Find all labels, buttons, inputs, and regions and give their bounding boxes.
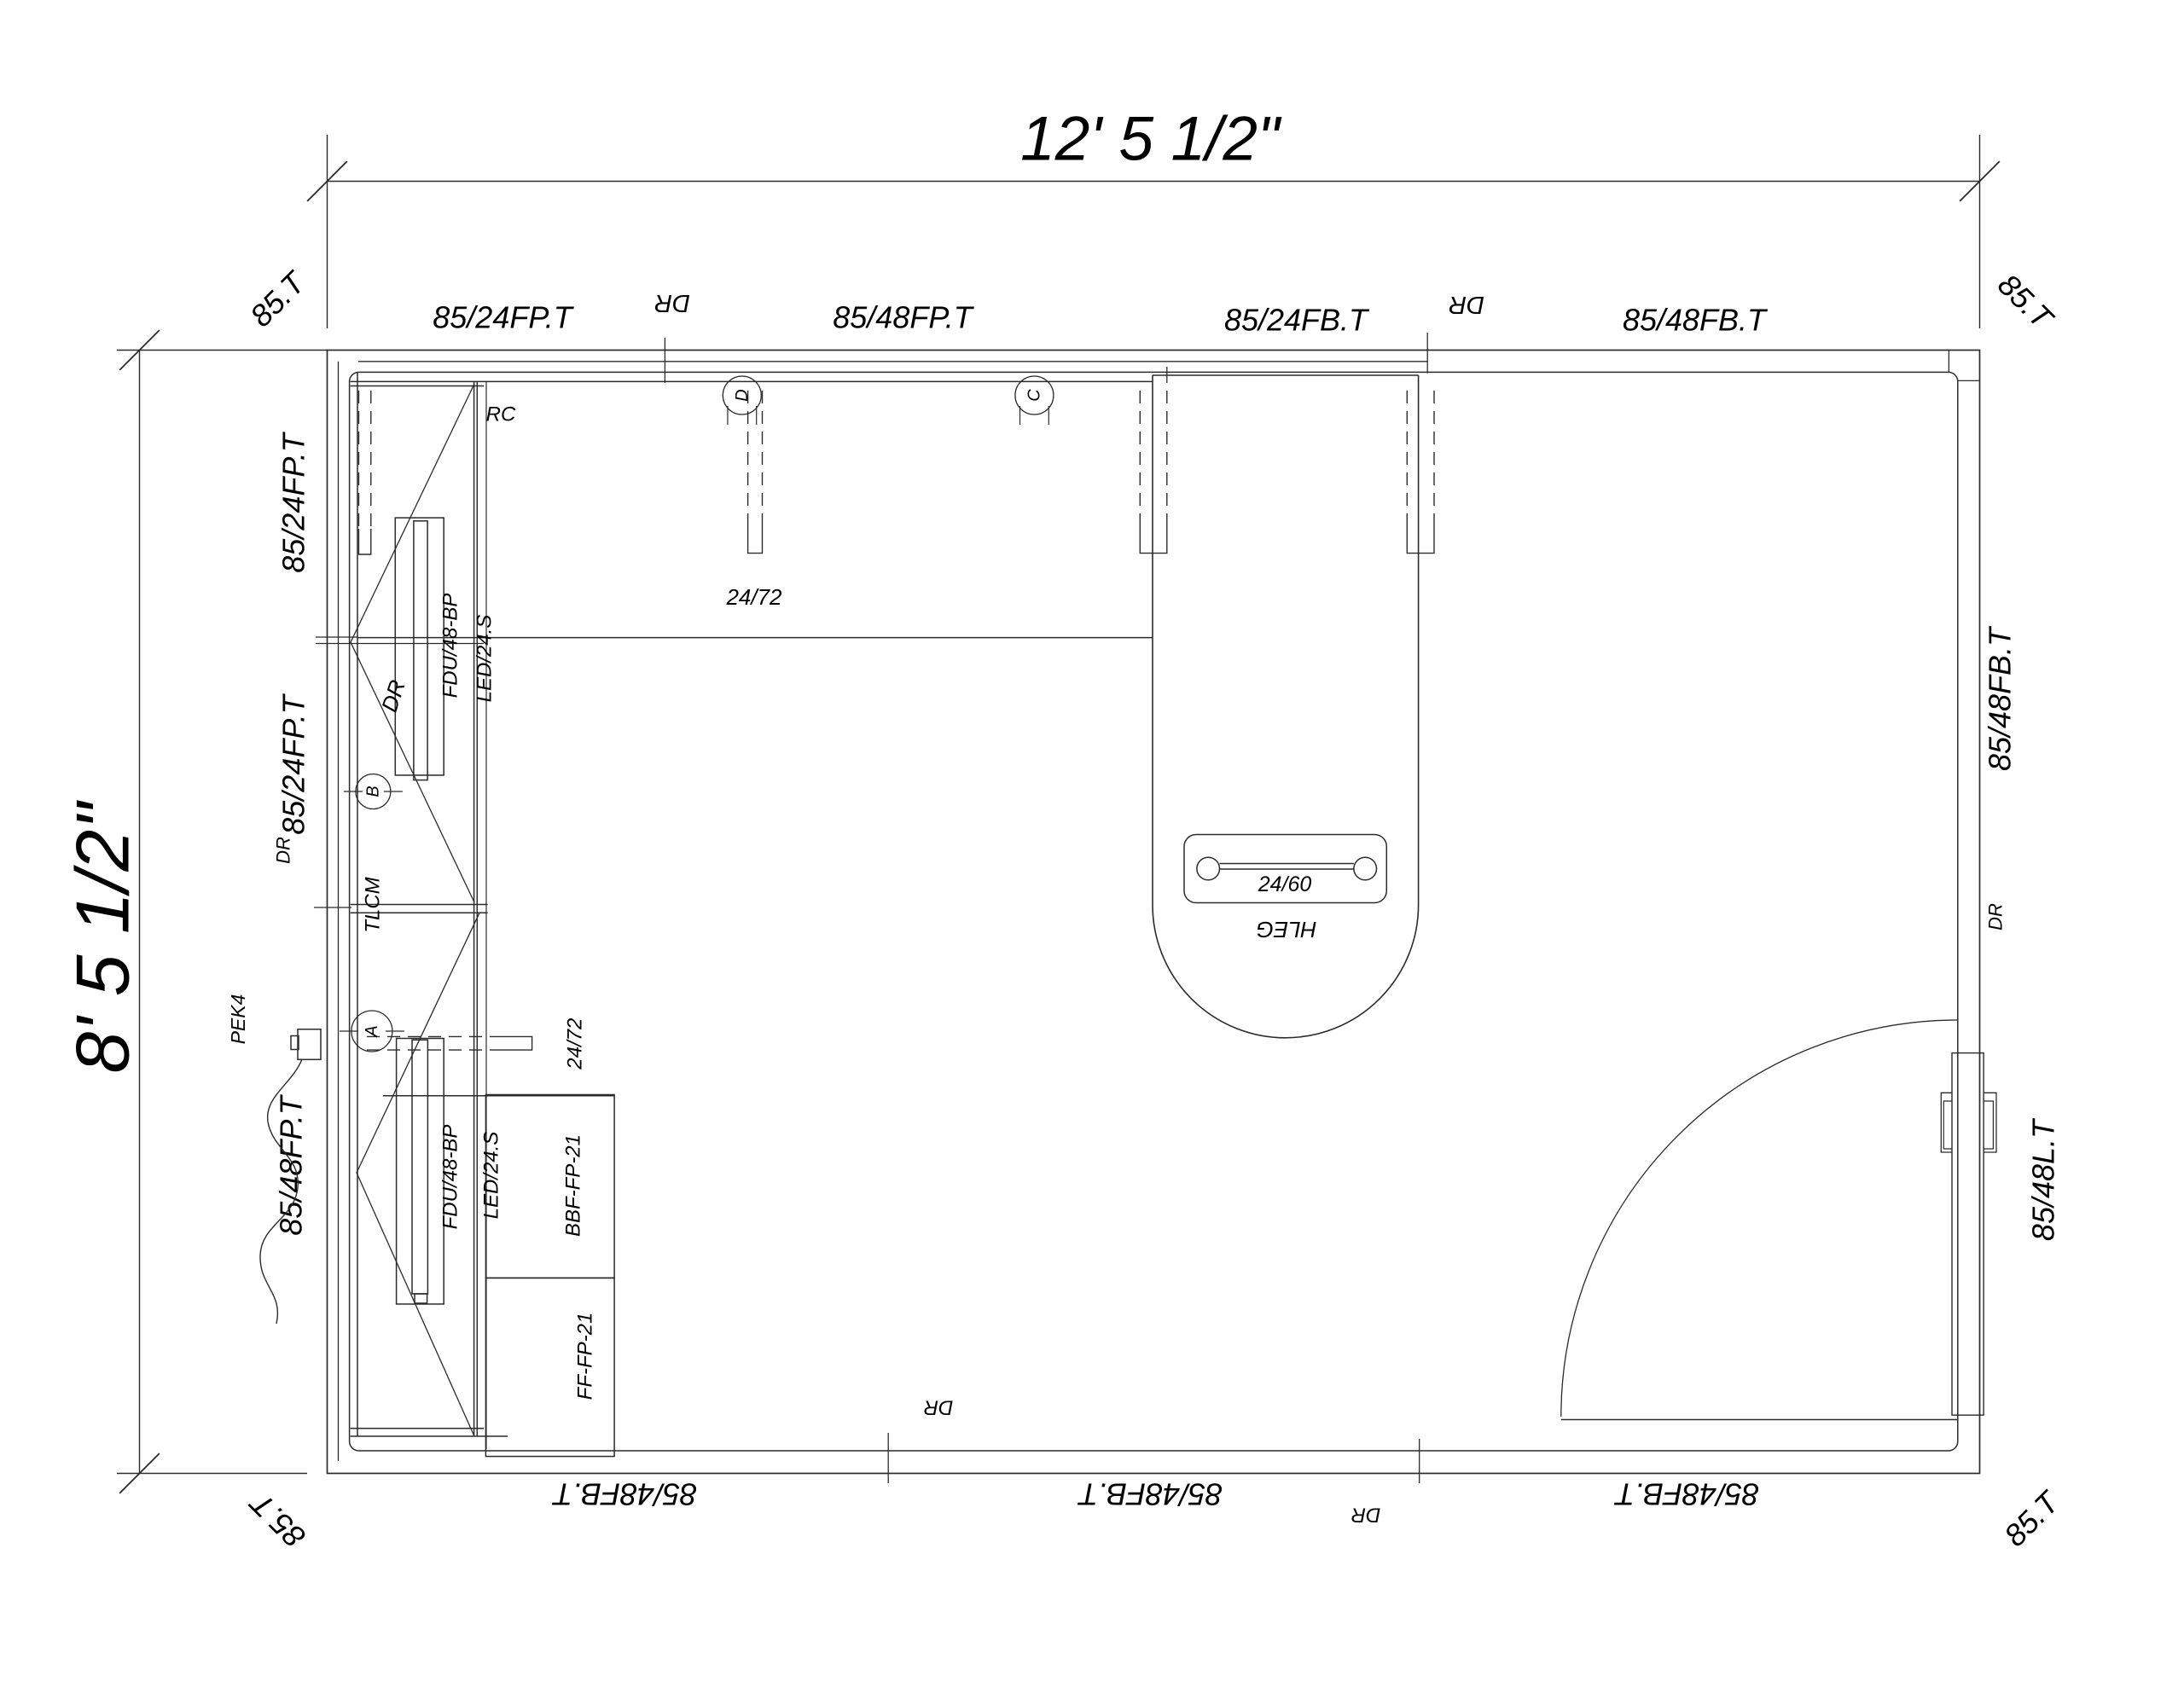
svg-text:24/60: 24/60 <box>1258 872 1312 896</box>
svg-text:DR: DR <box>924 1396 954 1419</box>
svg-text:85/48FB.T: 85/48FB.T <box>1613 1477 1759 1512</box>
svg-text:HLEG: HLEG <box>1257 917 1317 942</box>
svg-text:24/72: 24/72 <box>564 1018 587 1070</box>
svg-text:DR: DR <box>1985 903 2007 930</box>
svg-text:DR: DR <box>273 837 294 864</box>
svg-text:A: A <box>363 1025 381 1037</box>
svg-text:TLCM: TLCM <box>362 877 385 932</box>
svg-text:D: D <box>733 389 752 401</box>
svg-text:PEK4: PEK4 <box>227 994 249 1045</box>
svg-text:85/48FB.T: 85/48FB.T <box>551 1477 697 1512</box>
svg-text:RC: RC <box>486 403 516 426</box>
svg-text:FDU/48-BP: FDU/48-BP <box>439 1125 462 1230</box>
svg-text:24/72: 24/72 <box>725 584 782 610</box>
svg-text:85/48FB.T: 85/48FB.T <box>1623 303 1769 338</box>
svg-text:85/48FB.T: 85/48FB.T <box>1983 625 2018 771</box>
svg-text:8' 5 1/2": 8' 5 1/2" <box>61 800 145 1074</box>
svg-text:85/24FP.T: 85/24FP.T <box>276 431 311 572</box>
svg-text:LED/24.S: LED/24.S <box>480 1132 503 1220</box>
svg-text:LED/24.S: LED/24.S <box>473 615 497 703</box>
svg-text:DR: DR <box>1351 1504 1381 1527</box>
svg-text:85/24FB.T: 85/24FB.T <box>1224 303 1370 338</box>
svg-text:85/48FB.T: 85/48FB.T <box>1077 1477 1223 1512</box>
svg-text:85/48FP.T: 85/48FP.T <box>274 1093 309 1235</box>
svg-text:85/48FP.T: 85/48FP.T <box>833 300 974 335</box>
svg-text:DR: DR <box>1449 291 1484 318</box>
svg-text:BBF-FP-21: BBF-FP-21 <box>562 1134 585 1237</box>
svg-text:B: B <box>363 786 382 797</box>
svg-text:12' 5 1/2": 12' 5 1/2" <box>1020 105 1282 174</box>
svg-text:85/24FP.T: 85/24FP.T <box>276 693 311 834</box>
svg-text:85/24FP.T: 85/24FP.T <box>433 300 574 335</box>
svg-text:C: C <box>1025 389 1043 402</box>
svg-text:FF-FP-21: FF-FP-21 <box>574 1313 597 1400</box>
svg-text:85/48L.T: 85/48L.T <box>2026 1117 2061 1241</box>
svg-text:FDU/48-BP: FDU/48-BP <box>439 594 462 699</box>
svg-text:DR: DR <box>654 289 690 316</box>
